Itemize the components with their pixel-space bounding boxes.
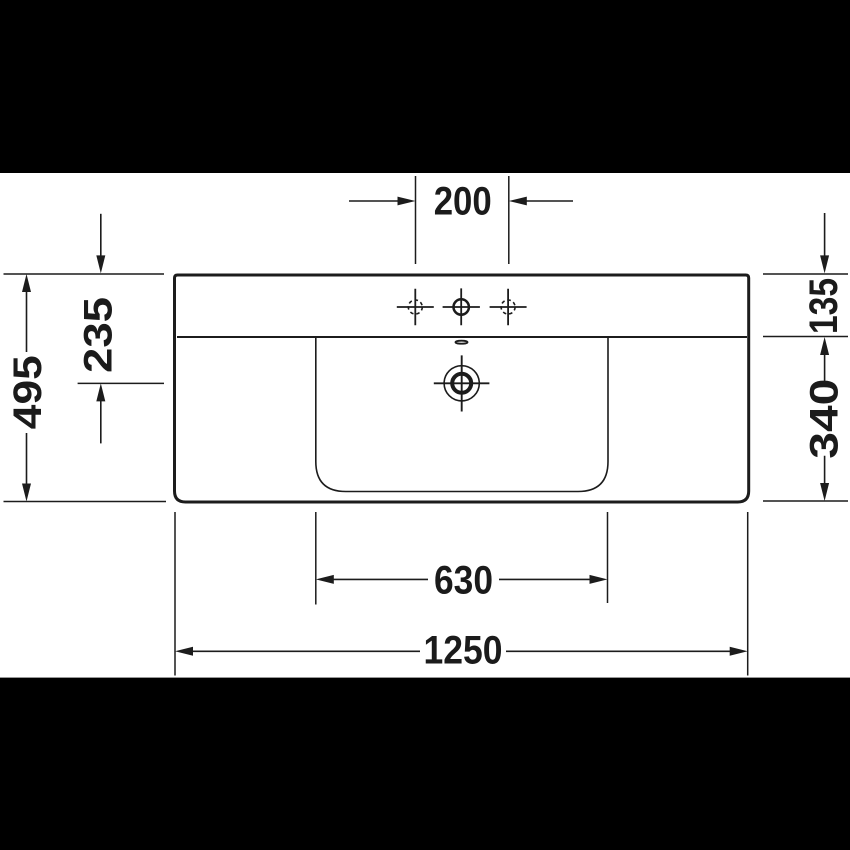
- svg-text:1250: 1250: [424, 628, 503, 672]
- svg-text:495: 495: [6, 355, 50, 429]
- svg-text:340: 340: [803, 379, 847, 459]
- svg-text:200: 200: [434, 179, 492, 223]
- svg-text:235: 235: [77, 297, 121, 373]
- svg-text:135: 135: [802, 278, 846, 334]
- svg-text:630: 630: [434, 558, 493, 602]
